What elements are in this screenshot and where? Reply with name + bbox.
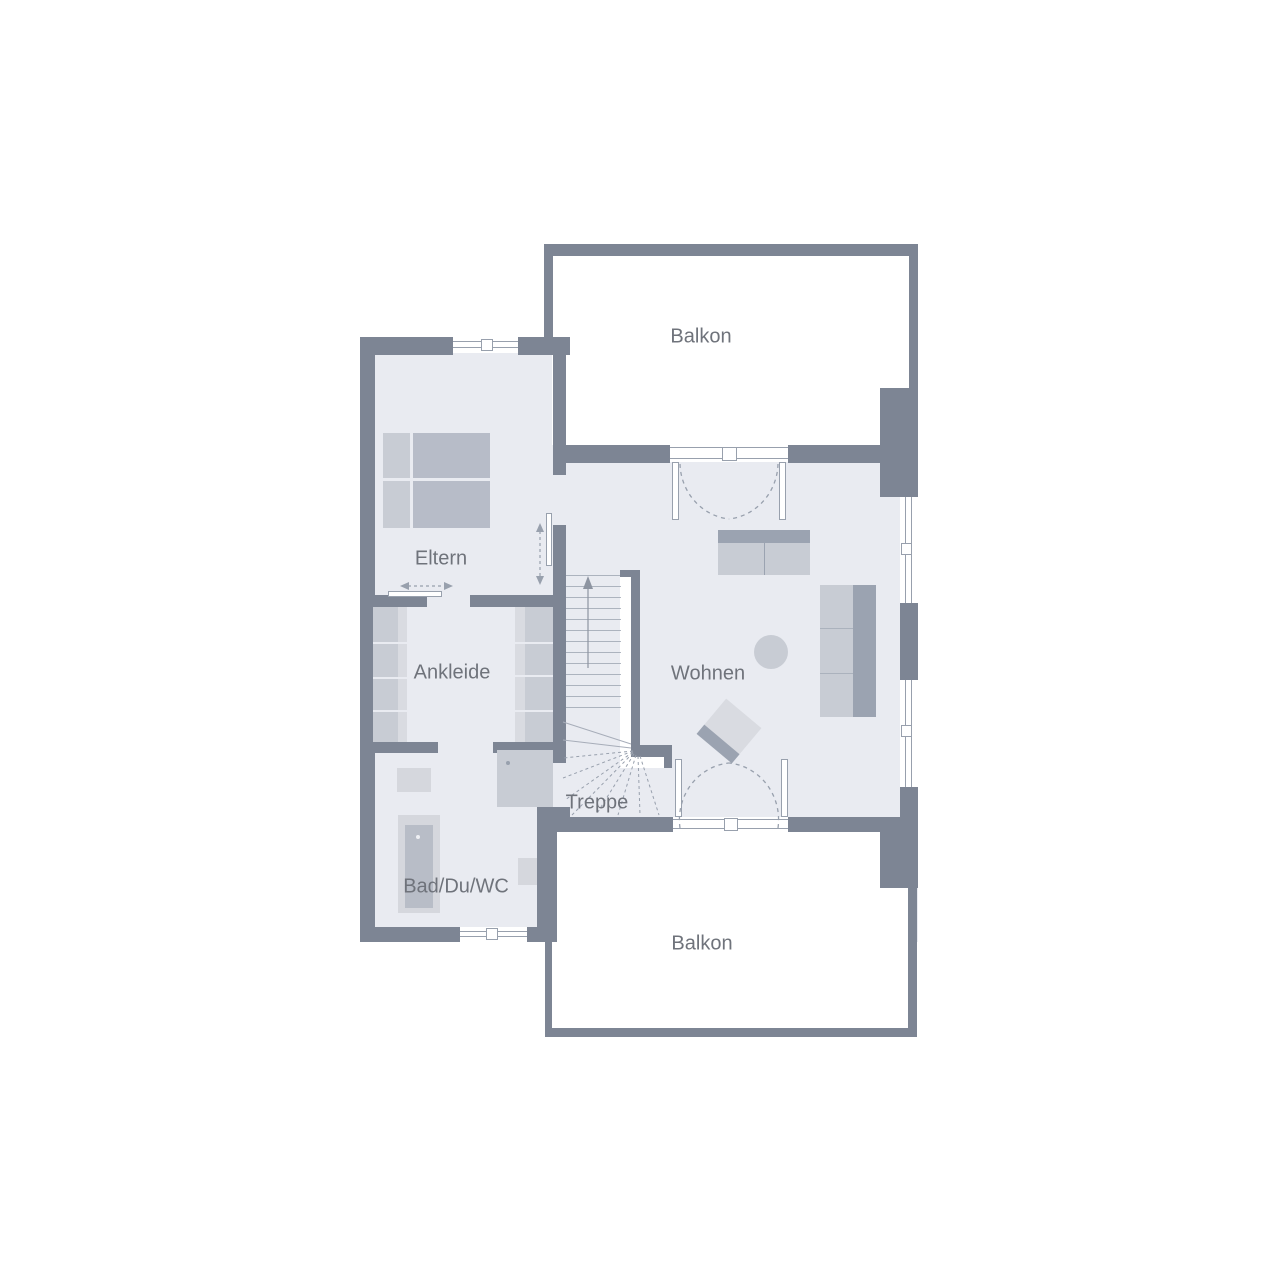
stair-arrow-head: [583, 576, 593, 589]
door-swing-arc: [729, 763, 779, 828]
stair-winder: [563, 751, 633, 758]
stair-winder: [640, 756, 659, 815]
floor-plan: Balkon Eltern Ankleide Wohnen Treppe Bad…: [0, 0, 1280, 1280]
room-label-wohnen: Wohnen: [671, 663, 745, 686]
sliding-arrow-head: [536, 523, 544, 532]
door-swing-arc: [729, 464, 778, 519]
room-label-ankleide: Ankleide: [414, 662, 491, 685]
sliding-arrow-head: [444, 582, 453, 590]
sliding-arrow-head: [536, 576, 544, 585]
room-label-balkon-top: Balkon: [670, 326, 731, 349]
room-label-eltern: Eltern: [415, 548, 467, 571]
room-label-balkon-bottom: Balkon: [671, 933, 732, 956]
room-label-treppe: Treppe: [566, 792, 629, 815]
stair-winder: [638, 756, 640, 815]
sliding-arrow-head: [400, 582, 409, 590]
symbol-overlay: [0, 0, 1280, 1280]
stair-winder: [563, 751, 633, 778]
room-label-bad: Bad/Du/WC: [403, 876, 509, 899]
door-swing-arc: [680, 464, 729, 519]
door-swing-arc: [679, 763, 729, 828]
